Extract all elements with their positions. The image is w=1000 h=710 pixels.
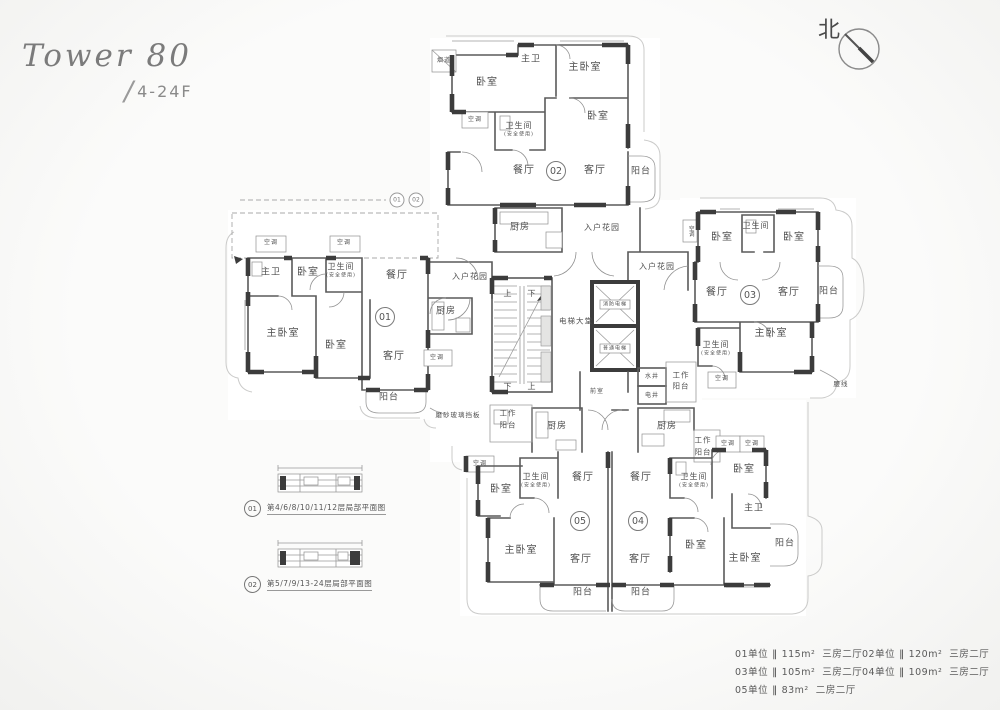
room-label: 卫生间 xyxy=(681,473,708,481)
unit-number-02: 02 xyxy=(546,161,566,181)
room-label: (安全使用) xyxy=(504,133,534,138)
legend-item: 05单位‖83m²二房二厅 xyxy=(735,682,856,696)
room-label: 空调 xyxy=(264,240,278,246)
unit-number-05: 05 xyxy=(570,511,590,531)
room-label: 卫生间 xyxy=(703,341,730,349)
room-label: 工作 xyxy=(695,436,712,444)
room-label: 主卧室 xyxy=(505,546,538,556)
room-label: 卧室 xyxy=(783,233,805,243)
north-label: 北 xyxy=(818,12,840,44)
room-label: (安全使用) xyxy=(679,484,709,489)
unit-number-01: 01 xyxy=(375,307,395,327)
room-label: 消防电梯 xyxy=(603,303,627,308)
legend-area: 120m² xyxy=(909,649,943,660)
room-label: 空调 xyxy=(721,441,735,447)
room-label: 主卧室 xyxy=(267,329,300,339)
room-label: 厨房 xyxy=(657,423,677,432)
room-label: 主卫 xyxy=(521,56,541,65)
room-label: 下 xyxy=(528,290,537,298)
detail-caption-1: 01 第4/6/8/10/11/12层局部平面图 xyxy=(244,500,386,517)
north-compass xyxy=(839,29,879,69)
legend-area: 83m² xyxy=(782,685,809,696)
room-label: 空调 xyxy=(687,226,693,237)
legend-unit: 02单位 xyxy=(862,649,895,660)
room-label: 下 xyxy=(504,383,513,391)
detail-text-01: 第4/6/8/10/11/12层局部平面图 xyxy=(267,502,386,515)
legend-unit: 04单位 xyxy=(862,667,895,678)
ref-circle-02: 02 xyxy=(409,193,424,208)
legend-separator: ‖ xyxy=(899,667,905,678)
slash-decoration: / xyxy=(124,76,135,107)
room-label: 主卧室 xyxy=(755,329,788,339)
room-label: 餐厅 xyxy=(706,288,728,298)
legend-item: 01单位‖115m²三房二厅 xyxy=(735,646,862,660)
room-label: 厨房 xyxy=(510,224,530,233)
legend-area: 115m² xyxy=(782,649,816,660)
room-label: 卧室 xyxy=(685,541,707,551)
page-title: Tower 80 xyxy=(22,38,192,74)
legend-area: 109m² xyxy=(909,667,943,678)
legend-separator: ‖ xyxy=(899,649,905,660)
room-label: 主卫 xyxy=(261,269,281,278)
legend-type: 三房二厅 xyxy=(822,649,862,660)
room-label: 入户花园 xyxy=(452,273,488,281)
room-label: 餐厅 xyxy=(572,473,594,483)
legend-type: 三房二厅 xyxy=(949,649,989,660)
room-label: 空调 xyxy=(745,441,759,447)
detail-text-02: 第5/7/9/13-24层局部平面图 xyxy=(267,578,372,591)
room-label: 厨房 xyxy=(436,308,456,317)
room-label: 水井 xyxy=(645,374,659,380)
detail-circle-01: 01 xyxy=(244,500,261,517)
floor-range: / 4-24F xyxy=(124,76,193,107)
ref-circle-01: 01 xyxy=(390,193,405,208)
room-label: 主卧室 xyxy=(729,554,762,564)
legend-area: 105m² xyxy=(782,667,816,678)
legend-item: 02单位‖120m²三房二厅 xyxy=(862,646,989,660)
room-label: 卫生间 xyxy=(743,222,770,230)
room-label: 上 xyxy=(528,383,537,391)
room-label: 客厅 xyxy=(778,288,800,298)
room-label: (安全使用) xyxy=(521,484,551,489)
legend-unit: 03单位 xyxy=(735,667,768,678)
legend-separator: ‖ xyxy=(772,667,778,678)
room-label: 腰线 xyxy=(834,381,849,388)
unit-number-04: 04 xyxy=(628,511,648,531)
detail-strip-2 xyxy=(278,540,362,567)
room-label: 厨房 xyxy=(547,423,567,432)
room-label: 上 xyxy=(504,290,513,298)
floor-range-text: 4-24F xyxy=(137,82,193,101)
room-label: 主卫 xyxy=(744,505,764,514)
legend-unit: 01单位 xyxy=(735,649,768,660)
room-label: 餐厅 xyxy=(630,473,652,483)
room-label: 阳台 xyxy=(819,288,839,297)
detail-circle-02: 02 xyxy=(244,576,261,593)
room-label: 主卧室 xyxy=(569,63,602,73)
room-label: 客厅 xyxy=(570,555,592,565)
legend-separator: ‖ xyxy=(772,649,778,660)
room-label: 电井 xyxy=(645,393,659,399)
unit-number-03: 03 xyxy=(740,285,760,305)
room-label: (安全使用) xyxy=(326,274,356,279)
room-label: 阳台 xyxy=(695,448,712,456)
room-label: 空调 xyxy=(337,240,351,246)
legend-item: 04单位‖109m²三房二厅 xyxy=(862,664,989,678)
room-label: 空调 xyxy=(473,461,487,467)
legend-type: 三房二厅 xyxy=(822,667,862,678)
room-label: 入户花园 xyxy=(584,224,620,232)
room-label: 烟道 xyxy=(437,58,451,64)
room-label: 阳台 xyxy=(379,394,399,403)
room-label: 卧室 xyxy=(587,112,609,122)
floor-plan-page: Tower 80 / 4-24F 北 烟道卧室主卫主卧室空调卫生间(安全使用)卧… xyxy=(0,0,1000,710)
room-label: 卫生间 xyxy=(523,473,550,481)
room-label: 卧室 xyxy=(325,341,347,351)
room-label: 餐厅 xyxy=(513,166,535,176)
room-label: 阳台 xyxy=(673,382,690,390)
detail-caption-2: 02 第5/7/9/13-24层局部平面图 xyxy=(244,576,372,593)
room-label: (安全使用) xyxy=(701,352,731,357)
room-label: 客厅 xyxy=(383,352,405,362)
room-label: 卧室 xyxy=(476,78,498,88)
room-label: 前室 xyxy=(590,389,604,395)
room-label: 阳台 xyxy=(775,540,795,549)
room-label: 阳台 xyxy=(500,421,517,429)
room-label: 入户花园 xyxy=(639,263,675,271)
room-label: 卫生间 xyxy=(328,263,355,271)
room-label: 空调 xyxy=(468,117,482,123)
room-label: 普通电梯 xyxy=(603,347,627,352)
legend-type: 二房二厅 xyxy=(816,685,856,696)
room-label: 卧室 xyxy=(490,485,512,495)
room-label: 阳台 xyxy=(631,168,651,177)
room-label: 卧室 xyxy=(711,233,733,243)
legend-separator: ‖ xyxy=(772,685,778,696)
room-label: 工作 xyxy=(673,371,690,379)
room-label: 阳台 xyxy=(631,589,651,598)
room-label: 阳台 xyxy=(573,589,593,598)
room-label: 工作 xyxy=(500,409,517,417)
legend-unit: 05单位 xyxy=(735,685,768,696)
room-label: 卧室 xyxy=(297,268,319,278)
room-label: 空调 xyxy=(715,376,729,382)
detail-strip-1 xyxy=(278,465,362,492)
room-label: 卧室 xyxy=(733,465,755,475)
legend-type: 三房二厅 xyxy=(949,667,989,678)
room-label: 餐厅 xyxy=(386,271,408,281)
room-label: 客厅 xyxy=(584,166,606,176)
room-label: 电梯大堂 xyxy=(559,317,593,325)
room-label: 客厅 xyxy=(629,555,651,565)
room-label: 磨砂玻璃挡板 xyxy=(436,412,481,419)
room-label: 卫生间 xyxy=(506,122,533,130)
room-label: 空调 xyxy=(430,355,444,361)
legend-item: 03单位‖105m²三房二厅 xyxy=(735,664,862,678)
